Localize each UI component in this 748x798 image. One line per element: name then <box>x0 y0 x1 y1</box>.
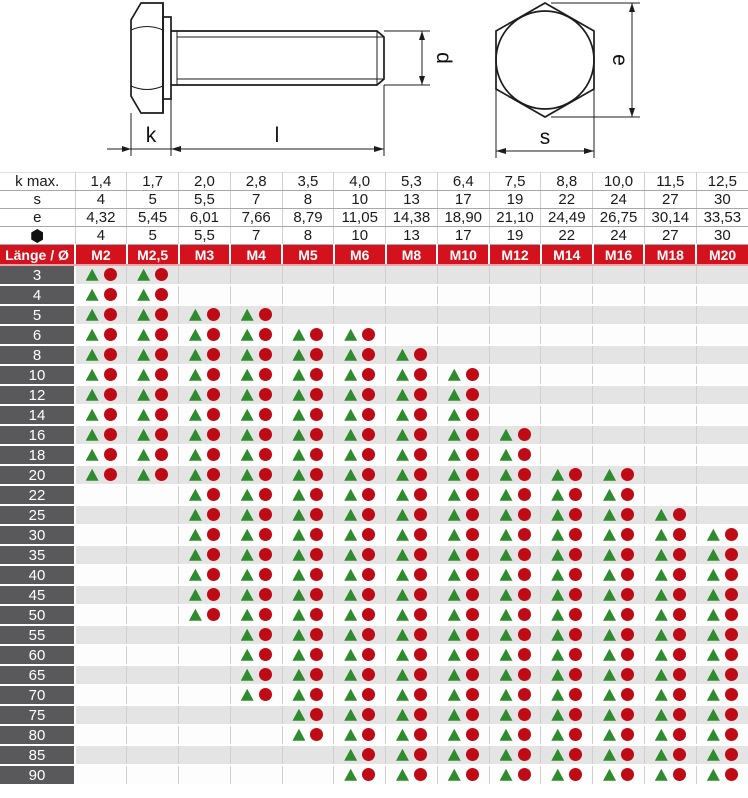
cell-30-M16 <box>593 525 645 545</box>
cell-4-M2,5 <box>127 285 179 305</box>
availability-markers <box>500 708 531 721</box>
cell-40-M3 <box>179 565 231 585</box>
availability-markers <box>396 468 427 481</box>
dim-e-M16: 26,75 <box>593 209 645 227</box>
triangle-marker <box>603 709 616 721</box>
cell-25-M8 <box>386 505 438 525</box>
triangle-marker <box>448 689 461 701</box>
cell-50-M8 <box>386 605 438 625</box>
dim-k-max-M8: 5,3 <box>386 173 438 191</box>
triangle-marker <box>500 529 513 541</box>
cell-5-M3 <box>179 305 231 325</box>
cell-50-M2,5 <box>127 605 179 625</box>
availability-markers <box>86 448 117 461</box>
circle-marker <box>155 348 168 361</box>
circle-marker <box>414 428 427 441</box>
cell-65-M3 <box>179 665 231 685</box>
circle-marker <box>310 328 323 341</box>
cell-80-M2 <box>75 725 127 745</box>
circle-marker <box>362 628 375 641</box>
cell-85-M20 <box>696 745 748 765</box>
triangle-marker <box>655 609 668 621</box>
circle-marker <box>259 368 272 381</box>
availability-markers <box>500 568 531 581</box>
availability-markers <box>707 708 738 721</box>
circle-marker <box>725 548 738 561</box>
cell-20-M4 <box>230 465 282 485</box>
circle-marker <box>207 528 220 541</box>
cell-22-M6 <box>334 485 386 505</box>
bolt-dimension-table: k max.1,41,72,02,83,54,05,36,47,58,810,0… <box>0 172 748 786</box>
availability-markers <box>655 668 686 681</box>
length-label-30: 30 <box>0 525 75 545</box>
length-label-65: 65 <box>0 665 75 685</box>
cell-50-M12 <box>489 605 541 625</box>
circle-marker <box>466 648 479 661</box>
availability-markers <box>189 448 220 461</box>
cell-45-M8 <box>386 585 438 605</box>
dim-label-k: k <box>146 124 157 147</box>
triangle-marker <box>448 429 461 441</box>
cell-50-M18 <box>644 605 696 625</box>
cell-16-M4 <box>230 425 282 445</box>
availability-markers <box>551 468 582 481</box>
size-column-M8: M8 <box>386 245 438 266</box>
availability-markers <box>551 508 582 521</box>
triangle-marker <box>500 729 513 741</box>
triangle-marker <box>603 649 616 661</box>
triangle-marker <box>189 429 202 441</box>
circle-marker <box>362 768 375 781</box>
availability-markers <box>292 588 323 601</box>
circle-marker <box>569 528 582 541</box>
circle-marker <box>621 708 634 721</box>
availability-markers <box>241 648 272 661</box>
availability-markers <box>344 468 375 481</box>
circle-marker <box>673 668 686 681</box>
circle-marker <box>518 648 531 661</box>
size-column-M20: M20 <box>696 245 748 266</box>
circle-marker <box>673 608 686 621</box>
availability-markers <box>344 668 375 681</box>
circle-marker <box>466 748 479 761</box>
triangle-marker <box>241 429 254 441</box>
length-label-55: 55 <box>0 625 75 645</box>
length-row-30: 30 <box>0 525 748 545</box>
availability-markers <box>603 688 634 701</box>
triangle-marker <box>500 589 513 601</box>
triangle-marker <box>189 549 202 561</box>
length-label-12: 12 <box>0 385 75 405</box>
availability-markers <box>603 648 634 661</box>
triangle-marker <box>603 489 616 501</box>
availability-markers <box>344 548 375 561</box>
cell-10-M20 <box>696 365 748 385</box>
circle-marker <box>414 348 427 361</box>
triangle-marker <box>344 669 357 681</box>
availability-markers <box>500 588 531 601</box>
circle-marker <box>414 688 427 701</box>
availability-markers <box>396 768 427 781</box>
availability-markers <box>448 608 479 621</box>
cell-30-M8 <box>386 525 438 545</box>
cell-3-M4 <box>230 265 282 285</box>
availability-markers <box>655 768 686 781</box>
triangle-marker <box>396 769 409 781</box>
circle-marker <box>466 488 479 501</box>
circle-marker <box>207 428 220 441</box>
length-label-40: 40 <box>0 565 75 585</box>
availability-markers <box>241 408 272 421</box>
triangle-marker <box>344 369 357 381</box>
triangle-marker <box>344 449 357 461</box>
circle-marker <box>673 588 686 601</box>
availability-markers <box>396 448 427 461</box>
cell-18-M10 <box>437 445 489 465</box>
cell-70-M16 <box>593 685 645 705</box>
availability-markers <box>292 328 323 341</box>
circle-marker <box>104 468 117 481</box>
availability-markers <box>292 628 323 641</box>
triangle-marker <box>292 629 305 641</box>
cell-16-M2 <box>75 425 127 445</box>
circle-marker <box>466 668 479 681</box>
availability-markers <box>292 548 323 561</box>
dim-s-M16: 24 <box>593 191 645 209</box>
availability-markers <box>344 528 375 541</box>
availability-markers <box>396 708 427 721</box>
availability-markers <box>500 548 531 561</box>
cell-60-M14 <box>541 645 593 665</box>
triangle-marker <box>189 369 202 381</box>
cell-4-M20 <box>696 285 748 305</box>
triangle-marker <box>551 669 564 681</box>
circle-marker <box>414 648 427 661</box>
cell-60-M6 <box>334 645 386 665</box>
circle-marker <box>414 628 427 641</box>
length-row-35: 35 <box>0 545 748 565</box>
triangle-marker <box>448 709 461 721</box>
availability-markers <box>448 488 479 501</box>
cell-16-M16 <box>593 425 645 445</box>
triangle-marker <box>241 629 254 641</box>
cell-6-M3 <box>179 325 231 345</box>
circle-marker <box>362 648 375 661</box>
cell-6-M4 <box>230 325 282 345</box>
cell-8-M16 <box>593 345 645 365</box>
triangle-marker <box>292 409 305 421</box>
cell-3-M2 <box>75 265 127 285</box>
availability-markers <box>448 588 479 601</box>
circle-marker <box>207 468 220 481</box>
circle-marker <box>414 528 427 541</box>
availability-markers <box>137 448 168 461</box>
circle-marker <box>518 548 531 561</box>
circle-marker <box>725 728 738 741</box>
availability-markers <box>396 728 427 741</box>
triangle-marker <box>500 669 513 681</box>
triangle-marker <box>137 389 150 401</box>
triangle-marker <box>344 509 357 521</box>
triangle-marker <box>241 409 254 421</box>
length-row-60: 60 <box>0 645 748 665</box>
dim-k-max-M20: 12,5 <box>696 173 748 191</box>
cell-55-M6 <box>334 625 386 645</box>
availability-markers <box>500 728 531 741</box>
availability-markers <box>344 728 375 741</box>
dim-wrench-M20: 30 <box>696 227 748 245</box>
availability-markers <box>344 768 375 781</box>
cell-50-M16 <box>593 605 645 625</box>
cell-18-M8 <box>386 445 438 465</box>
circle-marker <box>310 428 323 441</box>
dim-e-M12: 21,10 <box>489 209 541 227</box>
triangle-marker <box>448 489 461 501</box>
cell-16-M3 <box>179 425 231 445</box>
availability-markers <box>655 528 686 541</box>
cell-12-M4 <box>230 385 282 405</box>
triangle-marker <box>189 309 202 321</box>
availability-markers <box>396 568 427 581</box>
availability-markers <box>189 508 220 521</box>
length-row-45: 45 <box>0 585 748 605</box>
length-row-70: 70 <box>0 685 748 705</box>
cell-5-M6 <box>334 305 386 325</box>
circle-marker <box>414 368 427 381</box>
cell-16-M14 <box>541 425 593 445</box>
cell-5-M12 <box>489 305 541 325</box>
cell-65-M20 <box>696 665 748 685</box>
circle-marker <box>518 568 531 581</box>
circle-marker <box>414 748 427 761</box>
cell-45-M5 <box>282 585 334 605</box>
circle-marker <box>725 588 738 601</box>
availability-markers <box>603 488 634 501</box>
triangle-marker <box>292 509 305 521</box>
cell-35-M8 <box>386 545 438 565</box>
triangle-marker <box>448 449 461 461</box>
availability-markers <box>292 648 323 661</box>
cell-85-M5 <box>282 745 334 765</box>
availability-markers <box>344 628 375 641</box>
circle-marker <box>518 488 531 501</box>
availability-markers <box>292 468 323 481</box>
availability-markers <box>603 628 634 641</box>
cell-8-M6 <box>334 345 386 365</box>
cell-90-M20 <box>696 765 748 785</box>
circle-marker <box>466 728 479 741</box>
cell-45-M3 <box>179 585 231 605</box>
cell-14-M20 <box>696 405 748 425</box>
circle-marker <box>259 528 272 541</box>
circle-marker <box>104 388 117 401</box>
cell-90-M2 <box>75 765 127 785</box>
cell-25-M12 <box>489 505 541 525</box>
cell-75-M2,5 <box>127 705 179 725</box>
triangle-marker <box>655 669 668 681</box>
circle-marker <box>569 708 582 721</box>
length-label-4: 4 <box>0 285 75 305</box>
cell-85-M18 <box>644 745 696 765</box>
triangle-marker <box>344 389 357 401</box>
cell-55-M20 <box>696 625 748 645</box>
cell-30-M14 <box>541 525 593 545</box>
cell-40-M10 <box>437 565 489 585</box>
availability-markers <box>448 668 479 681</box>
cell-70-M10 <box>437 685 489 705</box>
cell-20-M18 <box>644 465 696 485</box>
cell-60-M10 <box>437 645 489 665</box>
triangle-marker <box>396 469 409 481</box>
triangle-marker <box>500 689 513 701</box>
table-header: k max.1,41,72,02,83,54,05,36,47,58,810,0… <box>0 173 748 266</box>
availability-markers <box>500 488 531 501</box>
circle-marker <box>362 688 375 701</box>
cell-45-M2 <box>75 585 127 605</box>
availability-markers <box>137 408 168 421</box>
triangle-marker <box>500 769 513 781</box>
availability-markers <box>86 308 117 321</box>
circle-marker <box>310 628 323 641</box>
cell-12-M5 <box>282 385 334 405</box>
triangle-marker <box>86 329 99 341</box>
availability-markers <box>448 548 479 561</box>
cell-25-M16 <box>593 505 645 525</box>
cell-10-M2,5 <box>127 365 179 385</box>
availability-markers <box>189 328 220 341</box>
triangle-marker <box>603 549 616 561</box>
triangle-marker <box>500 649 513 661</box>
circle-marker <box>725 608 738 621</box>
cell-3-M2,5 <box>127 265 179 285</box>
availability-markers <box>396 588 427 601</box>
dim-e-M14: 24,49 <box>541 209 593 227</box>
cell-80-M3 <box>179 725 231 745</box>
circle-marker <box>466 428 479 441</box>
circle-marker <box>518 688 531 701</box>
availability-markers <box>396 548 427 561</box>
cell-40-M2,5 <box>127 565 179 585</box>
circle-marker <box>621 688 634 701</box>
triangle-marker <box>344 709 357 721</box>
cell-8-M2,5 <box>127 345 179 365</box>
circle-marker <box>310 688 323 701</box>
cell-75-M10 <box>437 705 489 725</box>
circle-marker <box>310 708 323 721</box>
availability-markers <box>344 448 375 461</box>
triangle-marker <box>189 529 202 541</box>
circle-marker <box>259 508 272 521</box>
circle-marker <box>518 608 531 621</box>
cell-25-M14 <box>541 505 593 525</box>
circle-marker <box>207 448 220 461</box>
availability-markers <box>241 488 272 501</box>
circle-marker <box>259 388 272 401</box>
cell-22-M2,5 <box>127 485 179 505</box>
dim-label-e: e <box>608 54 631 66</box>
cell-70-M4 <box>230 685 282 705</box>
length-row-75: 75 <box>0 705 748 725</box>
length-row-8: 8 <box>0 345 748 365</box>
availability-markers <box>292 428 323 441</box>
cell-12-M20 <box>696 385 748 405</box>
cell-22-M12 <box>489 485 541 505</box>
cell-40-M12 <box>489 565 541 585</box>
length-row-50: 50 <box>0 605 748 625</box>
availability-markers <box>241 528 272 541</box>
availability-markers <box>707 648 738 661</box>
length-row-5: 5 <box>0 305 748 325</box>
circle-marker <box>155 268 168 281</box>
cell-70-M6 <box>334 685 386 705</box>
cell-50-M20 <box>696 605 748 625</box>
circle-marker <box>362 548 375 561</box>
triangle-marker <box>344 529 357 541</box>
dim-wrench-M2,5: 5 <box>127 227 179 245</box>
circle-marker <box>518 428 531 441</box>
cell-12-M16 <box>593 385 645 405</box>
dim-k-max-M18: 11,5 <box>644 173 696 191</box>
cell-50-M10 <box>437 605 489 625</box>
triangle-marker <box>448 509 461 521</box>
circle-marker <box>362 748 375 761</box>
triangle-marker <box>603 629 616 641</box>
circle-marker <box>725 648 738 661</box>
availability-markers <box>603 568 634 581</box>
cell-16-M20 <box>696 425 748 445</box>
circle-marker <box>621 548 634 561</box>
triangle-marker <box>603 769 616 781</box>
triangle-marker <box>86 349 99 361</box>
cell-30-M2 <box>75 525 127 545</box>
circle-marker <box>569 568 582 581</box>
circle-marker <box>362 708 375 721</box>
triangle-marker <box>344 329 357 341</box>
triangle-marker <box>707 669 720 681</box>
length-row-12: 12 <box>0 385 748 405</box>
cell-25-M2,5 <box>127 505 179 525</box>
circle-marker <box>362 348 375 361</box>
availability-markers <box>189 608 220 621</box>
cell-90-M5 <box>282 765 334 785</box>
cell-60-M5 <box>282 645 334 665</box>
cell-10-M12 <box>489 365 541 385</box>
availability-markers <box>655 728 686 741</box>
cell-8-M3 <box>179 345 231 365</box>
cell-4-M18 <box>644 285 696 305</box>
cell-8-M5 <box>282 345 334 365</box>
availability-markers <box>655 608 686 621</box>
cell-20-M12 <box>489 465 541 485</box>
length-label-3: 3 <box>0 265 75 285</box>
availability-markers <box>344 508 375 521</box>
circle-marker <box>518 628 531 641</box>
cell-65-M12 <box>489 665 541 685</box>
cell-85-M6 <box>334 745 386 765</box>
availability-markers <box>241 328 272 341</box>
circle-marker <box>259 428 272 441</box>
cell-65-M2 <box>75 665 127 685</box>
triangle-marker <box>241 309 254 321</box>
cell-20-M8 <box>386 465 438 485</box>
length-label-5: 5 <box>0 305 75 325</box>
availability-markers <box>137 348 168 361</box>
circle-marker <box>569 468 582 481</box>
cell-45-M16 <box>593 585 645 605</box>
triangle-marker <box>500 469 513 481</box>
cell-75-M3 <box>179 705 231 725</box>
triangle-marker <box>500 569 513 581</box>
